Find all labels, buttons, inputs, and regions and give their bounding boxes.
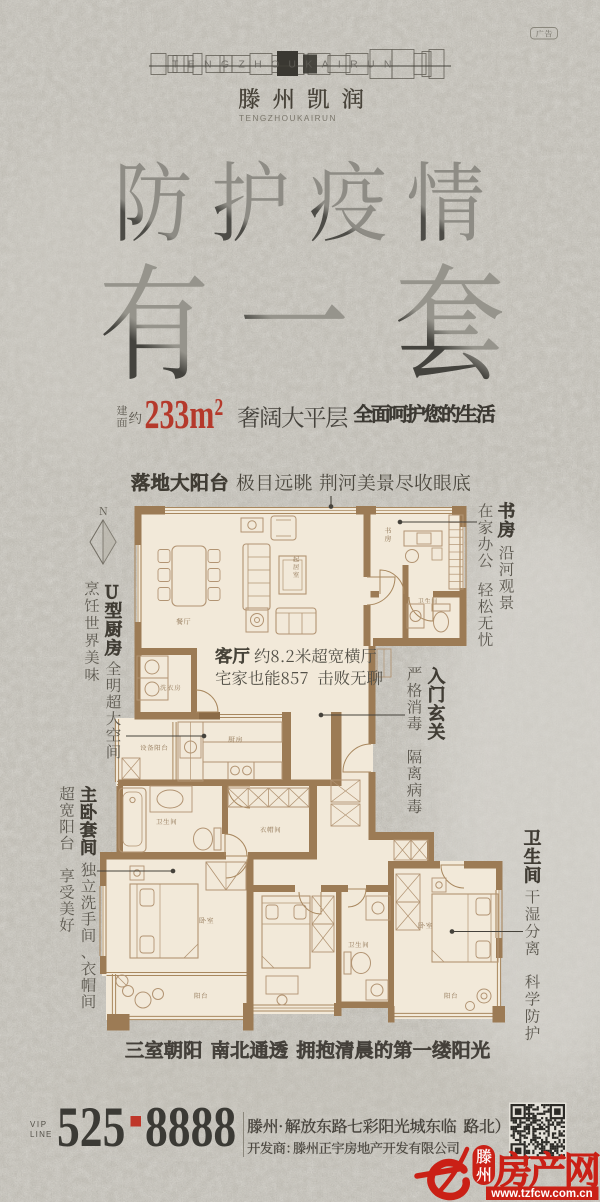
svg-text:8888: 8888 bbox=[145, 1096, 236, 1159]
svg-text:TENGZHOUKAIRUN: TENGZHOUKAIRUN bbox=[239, 114, 337, 123]
svg-text:VIP: VIP bbox=[30, 1120, 48, 1129]
svg-text:www.tzfcw.com.cn: www.tzfcw.com.cn bbox=[490, 1188, 592, 1200]
svg-text:525: 525 bbox=[57, 1096, 125, 1159]
svg-text:LINE: LINE bbox=[30, 1130, 53, 1139]
svg-text:TENGZHOUKAIRUN: TENGZHOUKAIRUN bbox=[172, 59, 401, 71]
svg-text:233m: 233m bbox=[145, 391, 215, 437]
svg-text:2: 2 bbox=[215, 393, 224, 420]
